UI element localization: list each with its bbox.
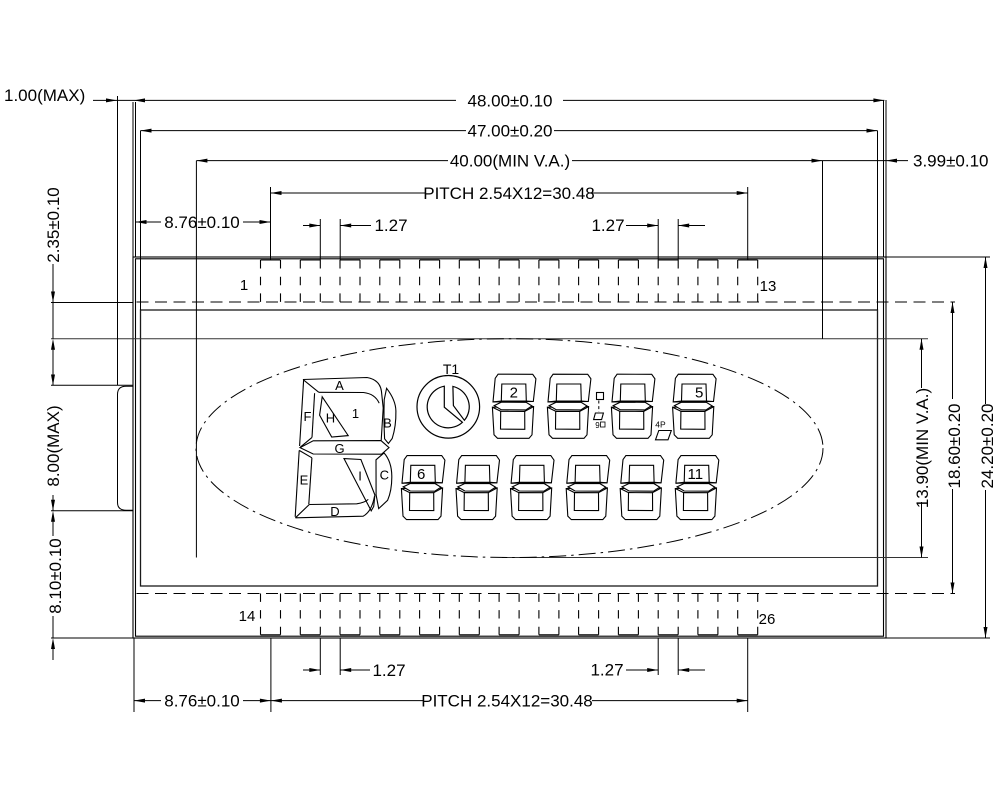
svg-text:1: 1: [352, 406, 359, 421]
svg-text:47.00±0.20: 47.00±0.20: [468, 122, 553, 141]
svg-text:4P: 4P: [655, 420, 666, 430]
svg-text:F: F: [304, 409, 312, 424]
svg-text:D: D: [330, 504, 339, 519]
svg-text:2.35±0.10: 2.35±0.10: [44, 187, 63, 263]
svg-text:1: 1: [240, 277, 248, 294]
svg-text:8.76±0.10: 8.76±0.10: [164, 692, 240, 711]
svg-text:1.27: 1.27: [591, 216, 624, 235]
svg-text:H: H: [326, 411, 335, 426]
svg-text:13: 13: [760, 278, 777, 295]
svg-text:G: G: [334, 441, 344, 456]
svg-text:1.27: 1.27: [590, 661, 623, 680]
svg-text:48.00±0.10: 48.00±0.10: [468, 92, 553, 111]
svg-text:5: 5: [695, 385, 703, 402]
svg-text:11: 11: [688, 466, 704, 483]
svg-text:1.27: 1.27: [372, 661, 405, 680]
svg-text:1.27: 1.27: [374, 216, 407, 235]
svg-text:3.99±0.10: 3.99±0.10: [913, 152, 989, 171]
svg-text:2: 2: [510, 385, 518, 402]
svg-text:C: C: [380, 468, 389, 483]
svg-text:13.90(MIN V.A.): 13.90(MIN V.A.): [913, 388, 932, 508]
svg-text:24.20±0.20: 24.20±0.20: [978, 404, 997, 489]
svg-text:E: E: [300, 473, 309, 488]
svg-text:PITCH 2.54X12=30.48: PITCH 2.54X12=30.48: [423, 184, 595, 203]
svg-text:B: B: [383, 416, 392, 431]
svg-text:PITCH 2.54X12=30.48: PITCH 2.54X12=30.48: [421, 692, 593, 711]
svg-text:8.00(MAX): 8.00(MAX): [44, 405, 63, 486]
svg-text:T1: T1: [443, 361, 460, 377]
svg-text:8.10±0.10: 8.10±0.10: [46, 538, 65, 614]
svg-text:8.76±0.10: 8.76±0.10: [164, 213, 240, 232]
svg-text:14: 14: [239, 608, 256, 625]
svg-text:26: 26: [759, 611, 776, 628]
svg-text:6: 6: [417, 466, 425, 483]
svg-text:A: A: [335, 378, 344, 393]
svg-text:40.00(MIN V.A.): 40.00(MIN V.A.): [450, 152, 570, 171]
svg-text:18.60±0.20: 18.60±0.20: [945, 404, 964, 489]
svg-text:1.00(MAX): 1.00(MAX): [4, 86, 85, 105]
svg-text:9: 9: [595, 421, 600, 430]
svg-text:I: I: [358, 469, 362, 484]
